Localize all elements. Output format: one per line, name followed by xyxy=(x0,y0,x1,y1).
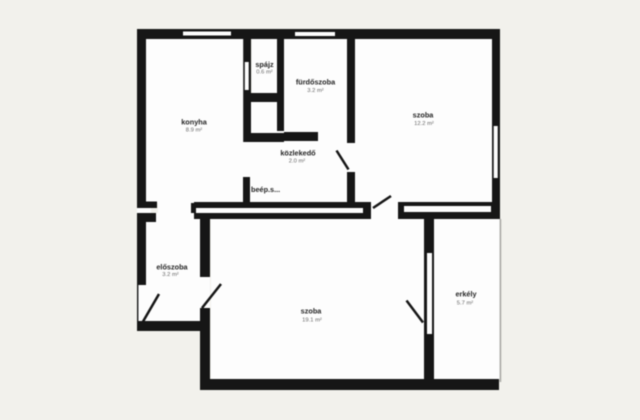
svg-text:szoba: szoba xyxy=(413,111,435,120)
svg-text:8.9 m²: 8.9 m² xyxy=(186,128,202,134)
svg-text:0.6 m²: 0.6 m² xyxy=(256,70,272,76)
svg-text:fürdőszoba: fürdőszoba xyxy=(296,78,336,87)
svg-text:spájz: spájz xyxy=(255,60,274,69)
svg-text:19.1 m²: 19.1 m² xyxy=(302,318,322,324)
svg-text:szoba: szoba xyxy=(301,307,323,316)
svg-text:beép.s...: beép.s... xyxy=(251,185,280,194)
svg-text:előszoba: előszoba xyxy=(156,263,188,272)
svg-text:konyha: konyha xyxy=(181,118,207,127)
svg-text:2.0 m²: 2.0 m² xyxy=(289,159,305,165)
svg-text:12.2 m²: 12.2 m² xyxy=(414,121,434,127)
svg-text:erkély: erkély xyxy=(455,290,477,299)
svg-text:5.7 m²: 5.7 m² xyxy=(457,301,473,307)
svg-text:3.2 m²: 3.2 m² xyxy=(307,88,323,94)
svg-text:közlekedő: közlekedő xyxy=(280,149,316,158)
svg-text:3.2 m²: 3.2 m² xyxy=(162,272,178,278)
